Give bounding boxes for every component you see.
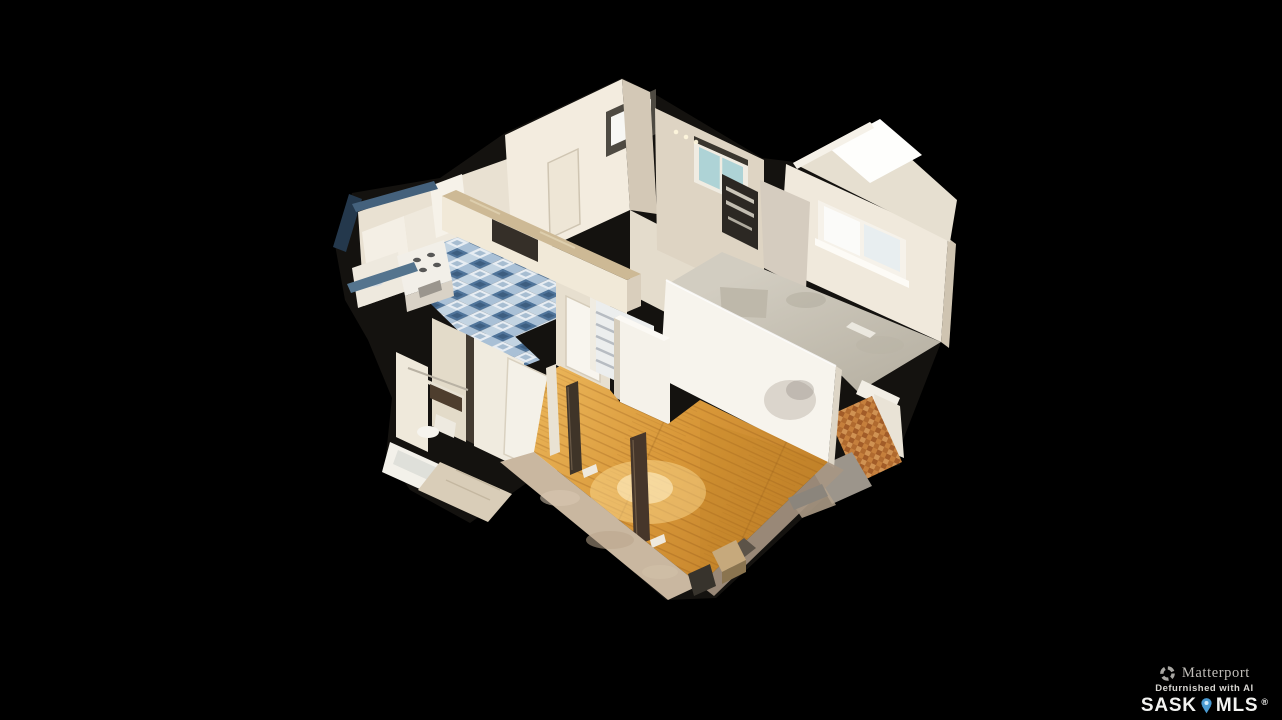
mls-text: MLS	[1216, 696, 1259, 715]
dollhouse-model	[0, 0, 1282, 720]
registered-mark: ®	[1261, 697, 1268, 707]
pot-light	[694, 140, 699, 145]
toilet	[417, 426, 439, 438]
pot-light	[684, 135, 689, 140]
matterport-brand-text: Matterport	[1182, 665, 1250, 682]
matterport-logo-icon	[1159, 665, 1176, 682]
map-pin-icon	[1200, 697, 1213, 714]
pot-light	[674, 130, 679, 135]
matterport-viewer: Matterport Defurnished with AI SASK MLS …	[0, 0, 1282, 720]
matterport-branding: Matterport	[1159, 665, 1250, 682]
back-hall-door	[548, 149, 580, 238]
dollhouse-3d-view[interactable]	[0, 0, 1282, 720]
sask-mls-logo: SASK MLS ®	[1141, 696, 1268, 715]
defurnished-label: Defurnished with AI	[1155, 683, 1253, 694]
sask-text: SASK	[1141, 696, 1197, 715]
watermark: Matterport Defurnished with AI SASK MLS …	[1141, 665, 1268, 715]
